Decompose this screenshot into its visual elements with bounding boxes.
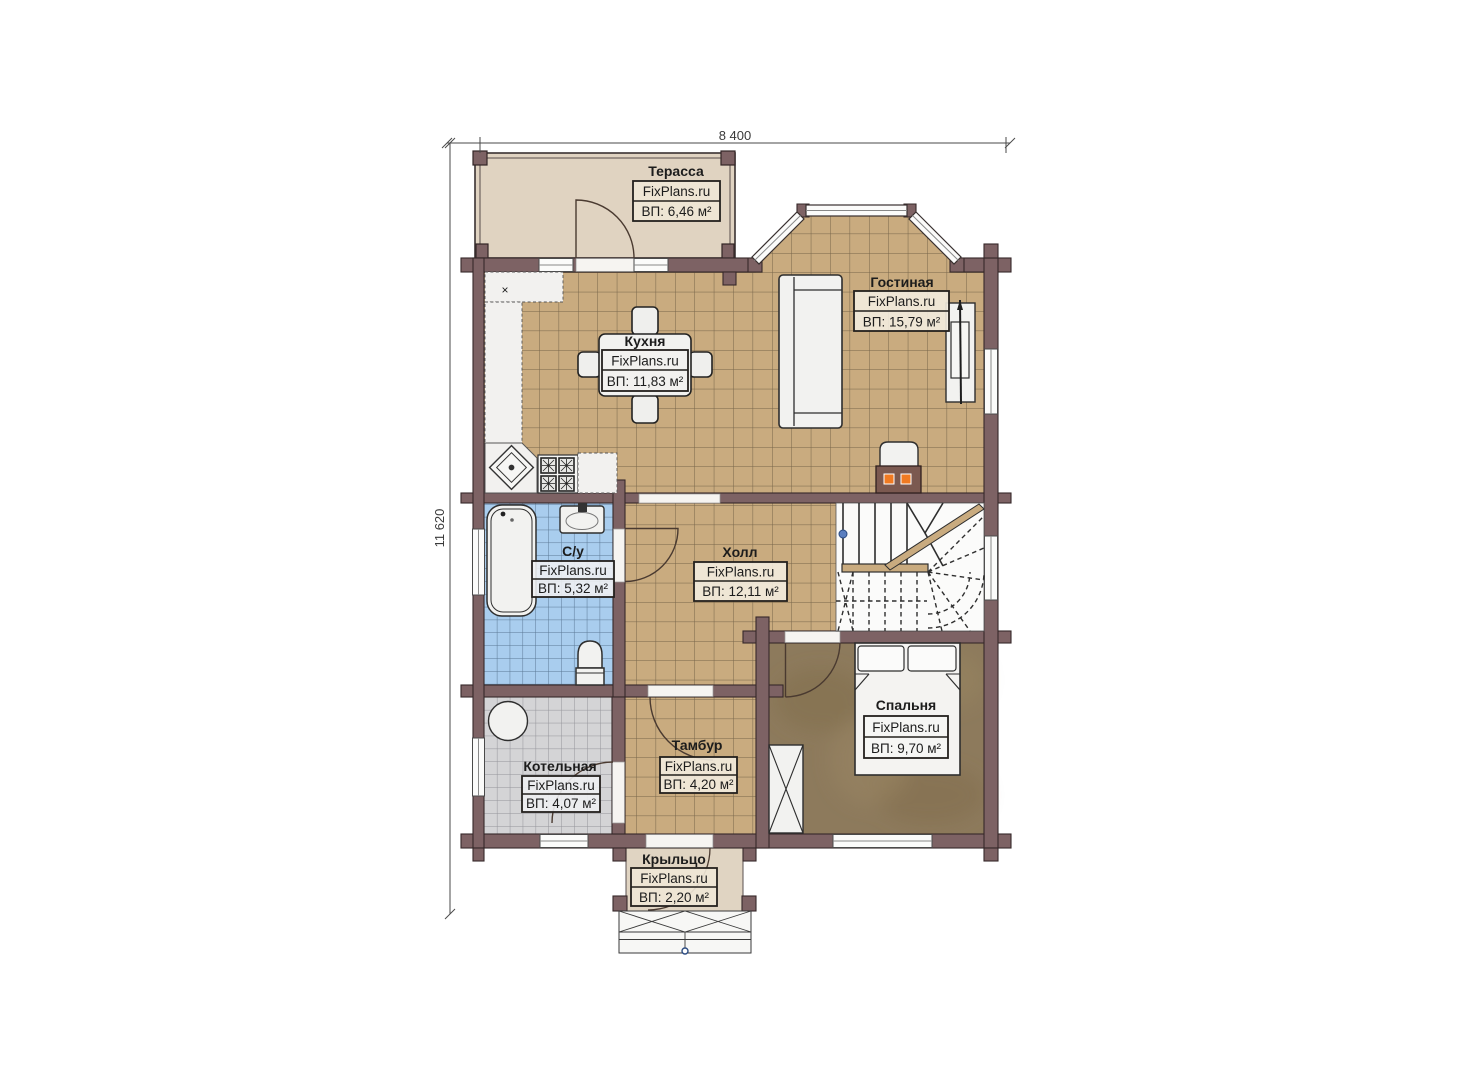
svg-text:Холл: Холл [722,544,757,560]
svg-text:FixPlans.ru: FixPlans.ru [665,759,733,774]
svg-text:FixPlans.ru: FixPlans.ru [872,720,940,735]
svg-text:Кухня: Кухня [625,333,666,349]
svg-text:ВП: 6,46 м²: ВП: 6,46 м² [641,204,712,219]
svg-text:8 400: 8 400 [719,128,752,143]
svg-text:ВП: 5,32 м²: ВП: 5,32 м² [538,581,609,596]
svg-text:FixPlans.ru: FixPlans.ru [707,565,775,580]
svg-text:Котельная: Котельная [523,758,596,774]
svg-text:ВП: 4,20 м²: ВП: 4,20 м² [663,777,734,792]
svg-text:FixPlans.ru: FixPlans.ru [643,184,711,199]
svg-text:Спальня: Спальня [876,697,936,713]
svg-text:FixPlans.ru: FixPlans.ru [640,871,708,886]
svg-text:11 620: 11 620 [432,509,447,548]
svg-text:FixPlans.ru: FixPlans.ru [539,563,607,578]
svg-text:×: × [501,283,508,297]
svg-text:ВП: 2,20 м²: ВП: 2,20 м² [639,890,710,905]
svg-text:FixPlans.ru: FixPlans.ru [527,778,595,793]
svg-text:ВП: 9,70 м²: ВП: 9,70 м² [871,741,942,756]
svg-text:ВП: 4,07 м²: ВП: 4,07 м² [526,796,597,811]
svg-text:ВП: 15,79 м²: ВП: 15,79 м² [863,315,941,330]
svg-text:Терасса: Терасса [648,163,704,179]
svg-text:ВП: 11,83 м²: ВП: 11,83 м² [607,374,684,389]
svg-text:С/у: С/у [562,543,584,559]
svg-text:FixPlans.ru: FixPlans.ru [868,294,936,309]
svg-text:Крыльцо: Крыльцо [642,851,706,867]
svg-text:FixPlans.ru: FixPlans.ru [611,354,679,369]
svg-text:Тамбур: Тамбур [672,737,723,753]
svg-text:ВП: 12,11 м²: ВП: 12,11 м² [702,584,779,599]
svg-text:Гостиная: Гостиная [870,274,933,290]
